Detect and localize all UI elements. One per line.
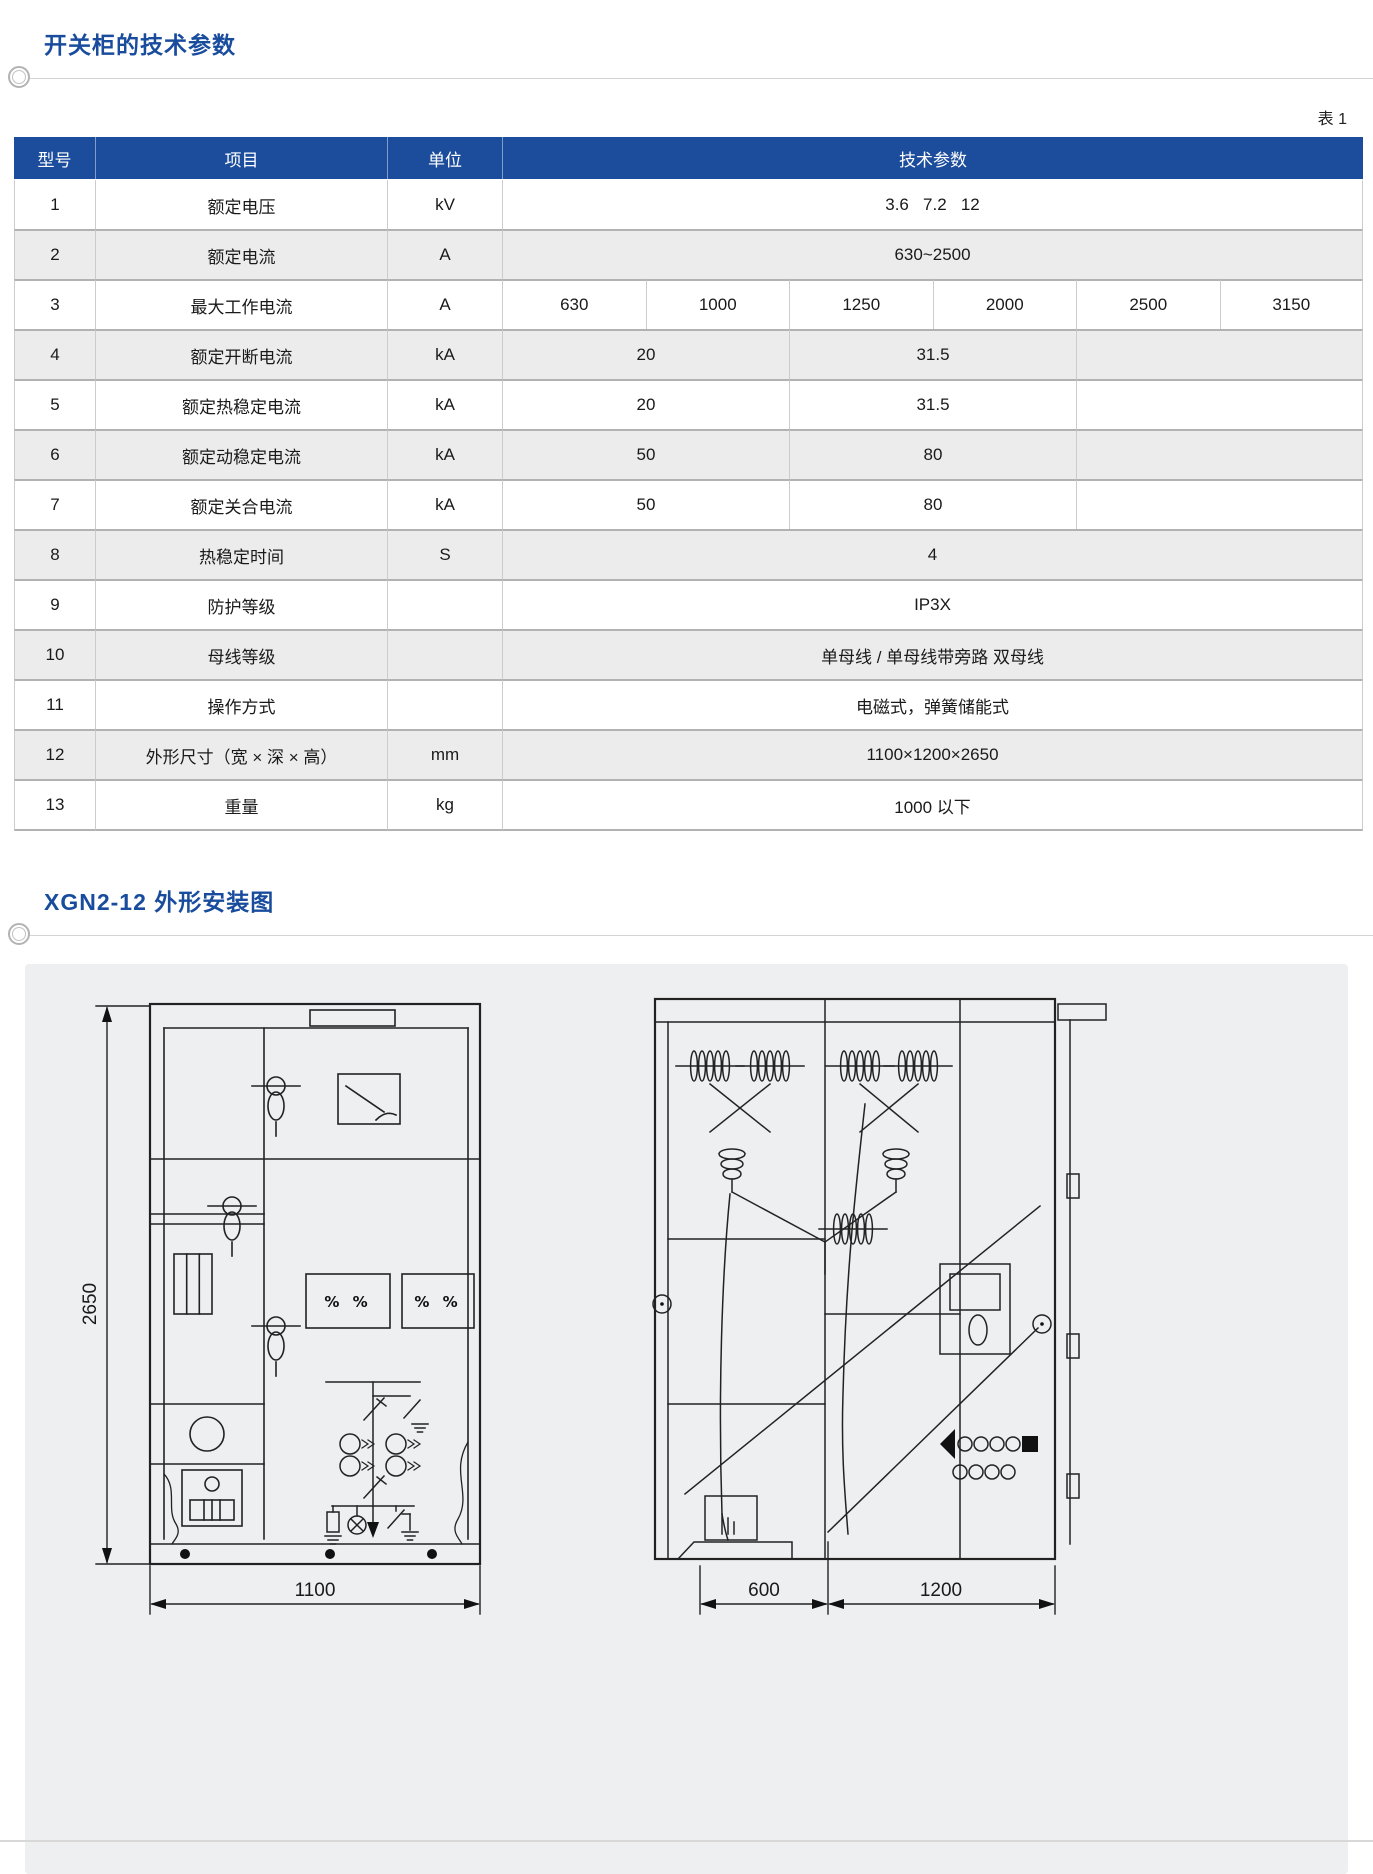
row-item: 外形尺寸（宽 × 深 × 高）	[95, 729, 387, 779]
row-unit: kA	[387, 429, 502, 479]
row-value: 80	[789, 479, 1076, 529]
row-value: 3150	[1220, 279, 1364, 329]
break-line	[455, 1442, 468, 1544]
insulator-icon	[719, 1149, 745, 1192]
row-item: 额定关合电流	[95, 479, 387, 529]
foot-assembly	[678, 1496, 792, 1559]
row-no: 11	[14, 679, 95, 729]
section-2-title: XGN2-12 外形安装图	[44, 883, 1373, 917]
row-value: 2500	[1076, 279, 1220, 329]
cable-run	[720, 1194, 730, 1540]
row-no: 6	[14, 429, 95, 479]
hinge-icon	[1067, 1474, 1079, 1498]
row-no: 10	[14, 629, 95, 679]
break-line	[164, 1474, 178, 1544]
row-value: 1100×1200×2650	[502, 729, 1363, 779]
row-value: IP3X	[502, 579, 1363, 629]
table-header-row: 型号 项目 单位 技术参数	[14, 137, 1363, 179]
table-row: 10 母线等级 单母线 / 单母线带旁路 双母线	[14, 629, 1363, 679]
row-no: 2	[14, 229, 95, 279]
row-value: 20	[502, 379, 789, 429]
col-header-params: 技术参数	[502, 137, 1363, 179]
row-value: 31.5	[789, 379, 1076, 429]
row-no: 5	[14, 379, 95, 429]
row-unit: kA	[387, 379, 502, 429]
insulator-chain	[940, 1429, 1038, 1479]
insulator-icon	[883, 1149, 909, 1192]
row-unit: S	[387, 529, 502, 579]
table-row: 12 外形尺寸（宽 × 深 × 高） mm 1100×1200×2650	[14, 729, 1363, 779]
section-divider	[0, 922, 1373, 950]
busbar-coil-icon	[884, 1051, 952, 1081]
table-row: 2 额定电流 A 630~2500	[14, 229, 1363, 279]
section-divider	[0, 65, 1373, 93]
col-header-unit: 单位	[387, 137, 502, 179]
row-value: 单母线 / 单母线带旁路 双母线	[502, 629, 1363, 679]
table-row: 1 额定电压 kV 3.6 7.2 12	[14, 179, 1363, 229]
row-item: 热稳定时间	[95, 529, 387, 579]
lock-panel-icon	[182, 1470, 242, 1526]
table-row: 6 额定动稳定电流 kA 50 80	[14, 429, 1363, 479]
operation-handle-icon	[208, 1197, 256, 1256]
row-unit	[387, 679, 502, 729]
divider-line	[18, 78, 1373, 79]
row-value: 3.6 7.2 12	[502, 179, 1363, 229]
indicator-symbols: % %	[324, 1293, 371, 1311]
mounting-point	[180, 1549, 190, 1559]
page-title: 开关柜的技术参数	[44, 26, 1373, 60]
depth-dimensions	[700, 1542, 1055, 1614]
row-unit	[387, 629, 502, 679]
front-view-drawing: 2650 % % % %	[80, 974, 520, 1634]
table-caption: 表 1	[0, 105, 1373, 129]
row-unit: A	[387, 279, 502, 329]
row-value: 4	[502, 529, 1363, 579]
section-1-header: 开关柜的技术参数	[0, 0, 1373, 93]
mounting-point	[427, 1549, 437, 1559]
row-value: 20	[502, 329, 789, 379]
row-unit: A	[387, 229, 502, 279]
row-no: 4	[14, 329, 95, 379]
cable-run	[842, 1104, 865, 1534]
row-value: 1000 以下	[502, 779, 1363, 831]
row-value: 电磁式，弹簧储能式	[502, 679, 1363, 729]
pushbutton-icon	[190, 1417, 224, 1451]
height-dimension	[96, 1006, 150, 1564]
section-2-header: XGN2-12 外形安装图	[0, 883, 1373, 950]
row-item: 最大工作电流	[95, 279, 387, 329]
row-no: 13	[14, 779, 95, 831]
row-value: 1250	[789, 279, 933, 329]
dim-label-1200: 1200	[920, 1580, 962, 1601]
table-row: 5 额定热稳定电流 kA 20 31.5	[14, 379, 1363, 429]
row-unit: kg	[387, 779, 502, 831]
row-item: 操作方式	[95, 679, 387, 729]
louver-vent-icon	[174, 1254, 212, 1314]
row-item: 额定电流	[95, 229, 387, 279]
mechanism-box	[940, 1264, 1010, 1354]
side-view-drawing: 600 1200	[610, 974, 1130, 1634]
operation-handle-icon	[252, 1317, 300, 1376]
row-no: 1	[14, 179, 95, 229]
col-header-model: 型号	[14, 137, 95, 179]
dim-label-2650: 2650	[80, 1283, 101, 1325]
row-unit: kV	[387, 179, 502, 229]
operation-handle-icon	[252, 1077, 300, 1136]
row-no: 8	[14, 529, 95, 579]
section-marker-icon	[8, 923, 30, 945]
meter-icon	[338, 1074, 400, 1124]
table-row: 13 重量 kg 1000 以下	[14, 779, 1363, 831]
divider-line	[18, 935, 1373, 936]
row-value	[1076, 329, 1363, 379]
row-unit: kA	[387, 479, 502, 529]
table-row: 7 额定关合电流 kA 50 80	[14, 479, 1363, 529]
row-item: 额定热稳定电流	[95, 379, 387, 429]
row-value	[1076, 429, 1363, 479]
table-row: 8 热稳定时间 S 4	[14, 529, 1363, 579]
row-value: 1000	[646, 279, 790, 329]
table-row: 3 最大工作电流 A 630 1000 1250 2000 2500 3150	[14, 279, 1363, 329]
row-item: 额定开断电流	[95, 329, 387, 379]
table-row: 4 额定开断电流 kA 20 31.5	[14, 329, 1363, 379]
row-value: 630~2500	[502, 229, 1363, 279]
row-value: 80	[789, 429, 1076, 479]
row-no: 12	[14, 729, 95, 779]
row-no: 7	[14, 479, 95, 529]
row-unit: mm	[387, 729, 502, 779]
document-page: { "page": { "section1_title": "开关柜的技术参数"…	[0, 0, 1373, 1848]
row-no: 3	[14, 279, 95, 329]
hinge-icon	[1067, 1334, 1079, 1358]
dim-label-1100: 1100	[295, 1580, 336, 1601]
busbar-coil-icon	[676, 1051, 744, 1081]
row-value: 2000	[933, 279, 1077, 329]
busbar-coil-icon	[736, 1051, 804, 1081]
row-unit: kA	[387, 329, 502, 379]
row-unit	[387, 579, 502, 629]
row-value	[1076, 479, 1363, 529]
circuit-diagram	[325, 1382, 428, 1544]
installation-drawing-panel: 2650 % % % %	[25, 964, 1348, 1874]
row-item: 重量	[95, 779, 387, 831]
hinge-icon	[1067, 1174, 1079, 1198]
row-item: 额定电压	[95, 179, 387, 229]
page-footer-divider	[0, 1840, 1373, 1842]
row-value: 630	[502, 279, 646, 329]
mounting-point	[325, 1549, 335, 1559]
table-row: 11 操作方式 电磁式，弹簧储能式	[14, 679, 1363, 729]
row-item: 防护等级	[95, 579, 387, 629]
row-item: 母线等级	[95, 629, 387, 679]
row-no: 9	[14, 579, 95, 629]
section-marker-icon	[8, 66, 30, 88]
dim-label-600: 600	[748, 1580, 780, 1601]
row-value: 50	[502, 479, 789, 529]
spec-table: 型号 项目 单位 技术参数 1 额定电压 kV 3.6 7.2 12 2 额定电…	[14, 137, 1363, 831]
indicator-symbols: % %	[414, 1293, 461, 1311]
row-value: 50	[502, 429, 789, 479]
table-row: 9 防护等级 IP3X	[14, 579, 1363, 629]
col-header-item: 项目	[95, 137, 387, 179]
row-value	[1076, 379, 1363, 429]
row-item: 额定动稳定电流	[95, 429, 387, 479]
row-value: 31.5	[789, 329, 1076, 379]
